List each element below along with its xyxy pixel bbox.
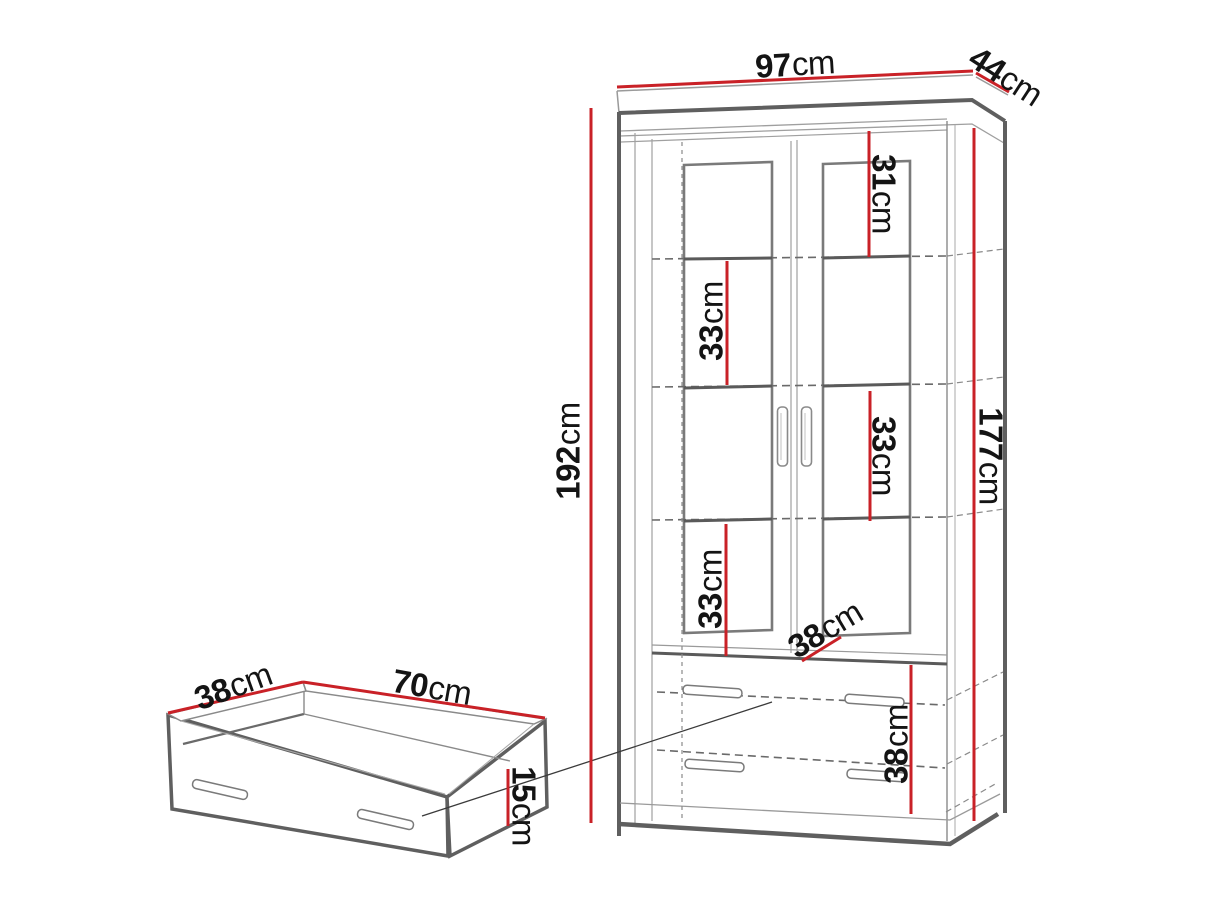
dimension-label-cabinet-width: 97cm	[754, 45, 836, 83]
cabinet-shelves	[652, 142, 1004, 818]
drawer-pointer-line	[422, 702, 772, 816]
cabinet-drawing	[617, 75, 1008, 844]
line-drawing	[0, 0, 1219, 914]
dimension-label-cabinet-height: 192cm	[552, 402, 585, 500]
dimension-label-top-compartment: 31cm	[868, 154, 901, 234]
dimension-label-compartment-4: 33cm	[694, 549, 727, 629]
furniture-dimension-diagram: 97cm 44cm 192cm 31cm 33cm 33cm 33cm 38cm…	[0, 0, 1219, 914]
dimension-label-compartment-2: 33cm	[695, 281, 728, 361]
right-door-handle	[802, 407, 812, 466]
dimension-label-drawer-height: 15cm	[508, 766, 541, 846]
dimension-label-compartment-3: 33cm	[868, 416, 901, 496]
internal-drawer-handle	[683, 685, 742, 698]
cabinet-carcass	[619, 112, 1005, 844]
dimension-label-drawer-compartment: 38cm	[880, 704, 913, 784]
left-door-handle	[778, 407, 788, 466]
dimension-label-interior-height: 177cm	[975, 407, 1008, 505]
internal-drawer-handle	[685, 759, 744, 772]
